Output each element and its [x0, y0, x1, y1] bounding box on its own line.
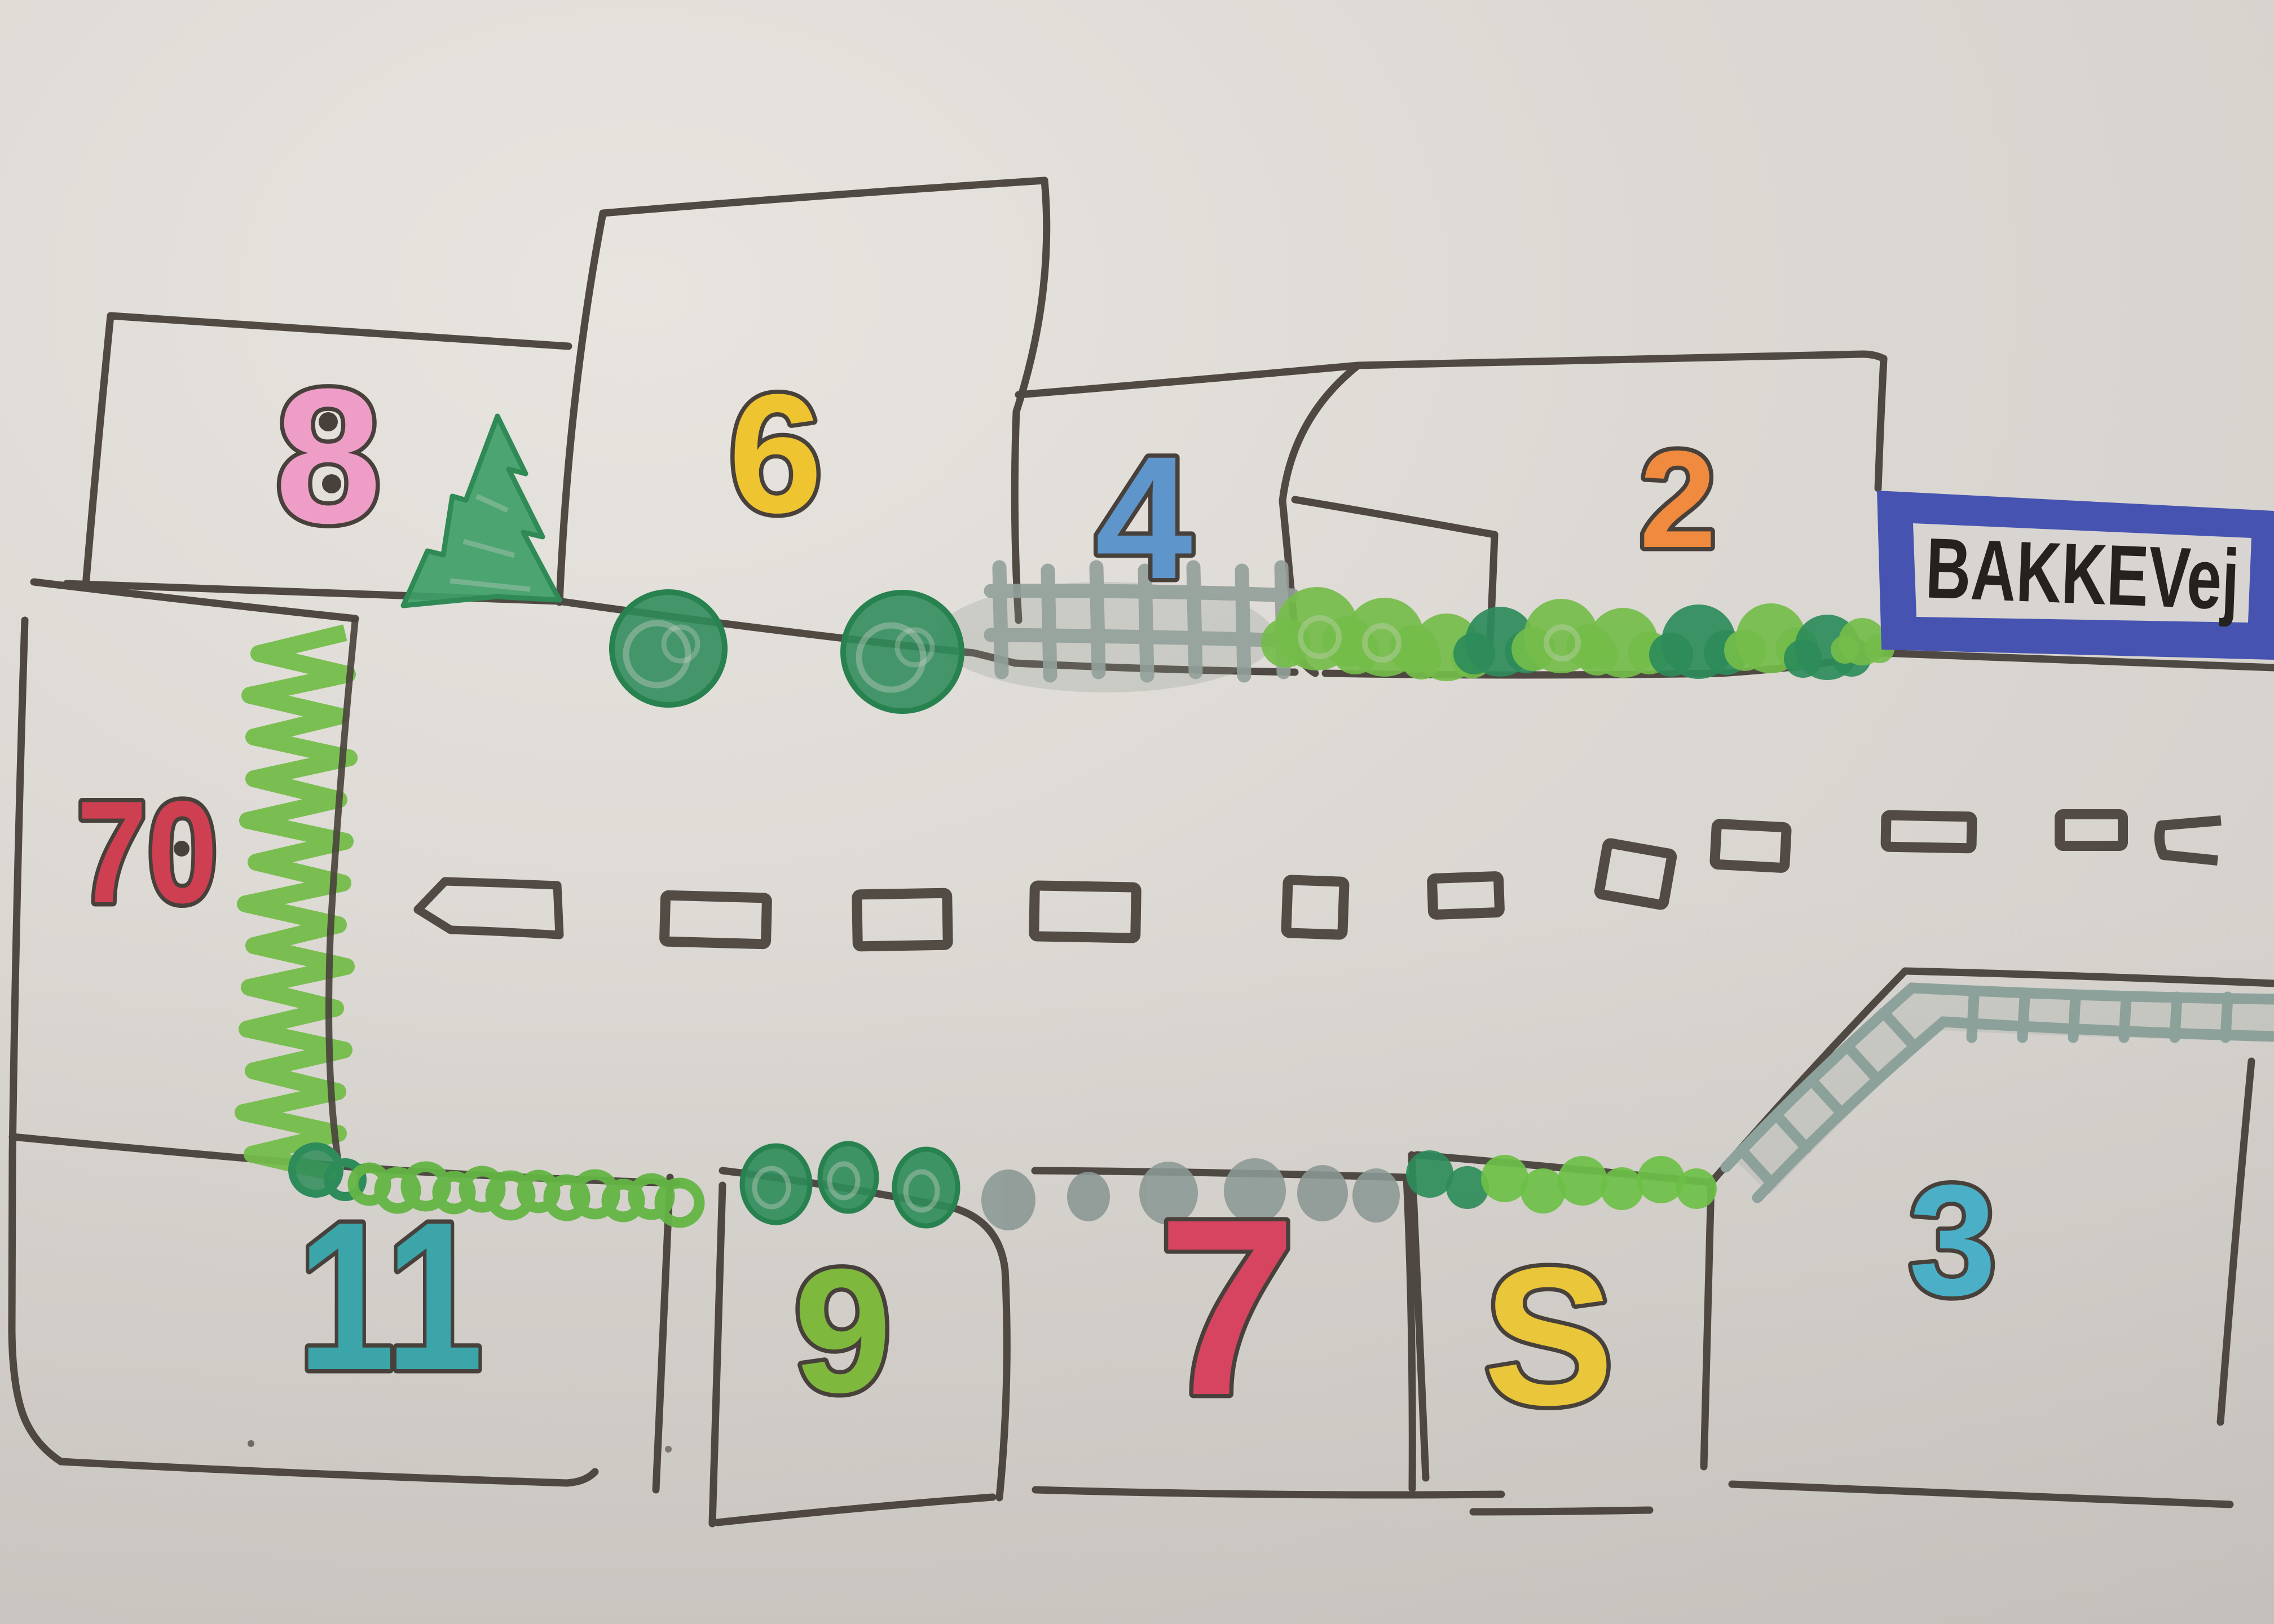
svg-text:7: 7 — [1157, 1167, 1297, 1448]
svg-text:S: S — [1483, 1226, 1614, 1446]
svg-text:4: 4 — [1095, 420, 1193, 615]
svg-text:9: 9 — [794, 1233, 892, 1429]
svg-text:70: 70 — [77, 770, 218, 933]
svg-text:11: 11 — [297, 1179, 483, 1414]
svg-text:8: 8 — [275, 349, 381, 563]
svg-text:2: 2 — [1640, 422, 1716, 576]
svg-text:6: 6 — [729, 359, 823, 548]
svg-text:3: 3 — [1909, 1153, 1997, 1329]
svg-text:BAKKEVej: BAKKEVej — [1924, 520, 2241, 628]
